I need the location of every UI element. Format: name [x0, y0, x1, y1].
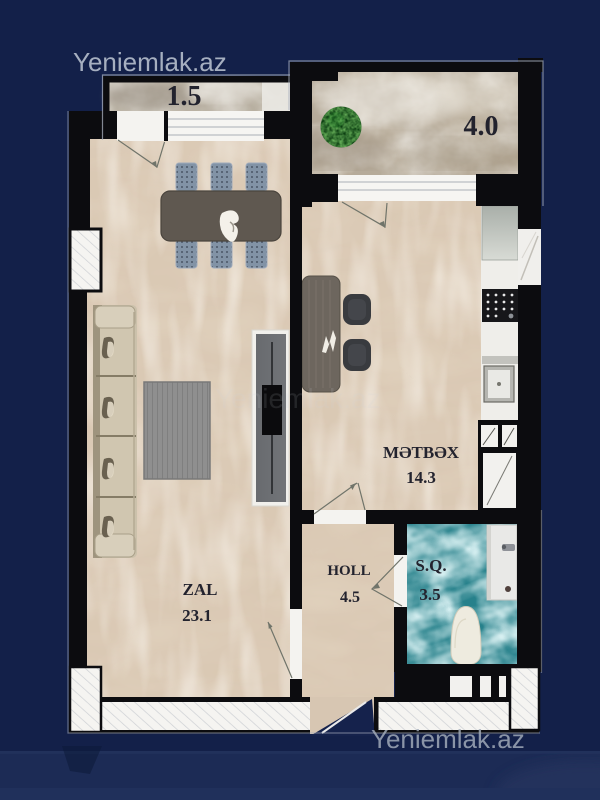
svg-text:1.5: 1.5 [167, 81, 202, 112]
svg-text:4.5: 4.5 [340, 589, 360, 606]
svg-text:ZAL: ZAL [183, 580, 218, 599]
svg-text:23.1: 23.1 [182, 606, 212, 625]
svg-text:3.5: 3.5 [419, 585, 440, 604]
svg-text:Yeniemlak.az: Yeniemlak.az [215, 383, 381, 414]
svg-text:14.3: 14.3 [406, 468, 436, 487]
svg-text:HOLL: HOLL [327, 563, 370, 579]
svg-text:S.Q.: S.Q. [415, 556, 446, 575]
svg-text:4.0: 4.0 [464, 111, 499, 142]
svg-text:MƏTBƏX: MƏTBƏX [383, 443, 460, 462]
svg-text:Yeniemlak.az: Yeniemlak.az [73, 47, 227, 77]
svg-text:Yeniemlak.az: Yeniemlak.az [371, 724, 525, 754]
